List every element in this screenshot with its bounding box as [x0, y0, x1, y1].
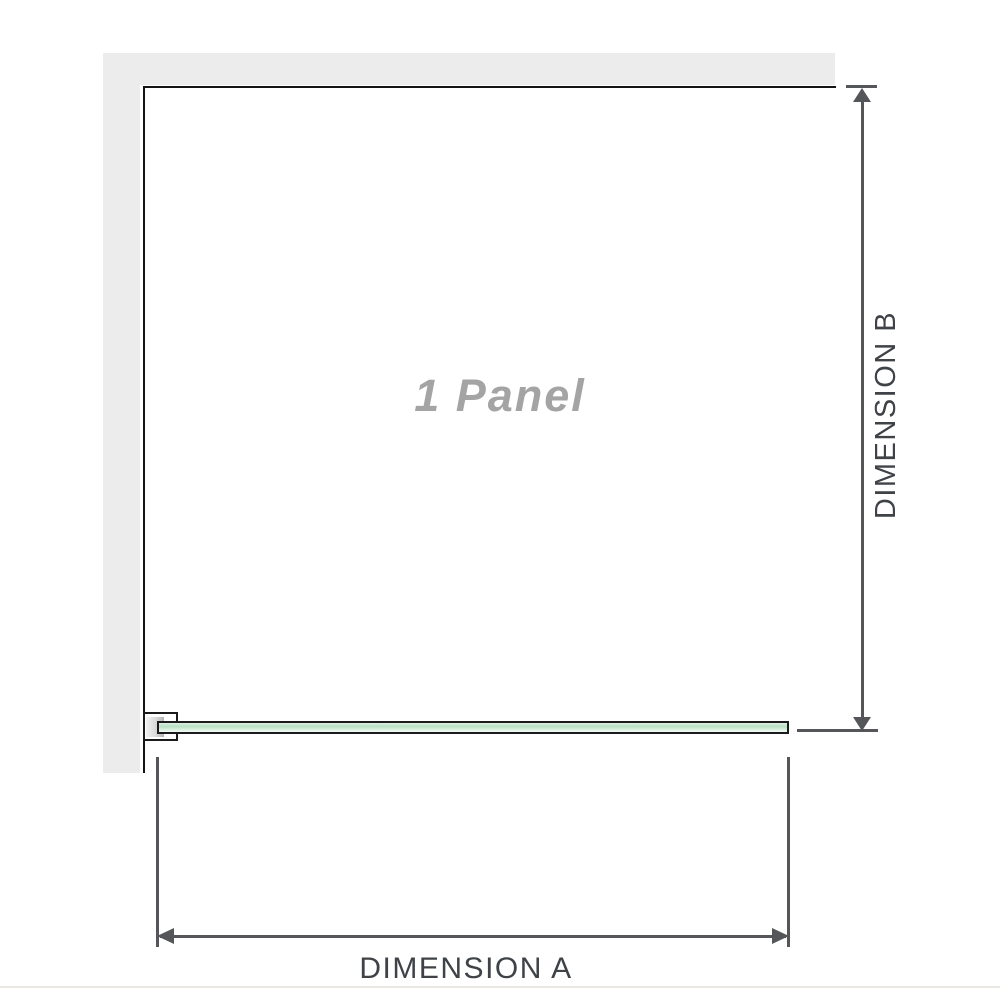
wall-left-bar [103, 53, 140, 773]
baseline-rule [0, 986, 1000, 988]
dimension-b-line [861, 99, 864, 719]
dimension-a-extension-left [156, 757, 159, 947]
panel-outline-top [143, 86, 836, 88]
dimension-a-line [160, 935, 786, 938]
dimension-b-label: DIMENSION B [870, 305, 900, 525]
arrow-up-icon [853, 88, 871, 102]
arrow-down-icon [853, 717, 871, 731]
arrow-right-icon [772, 928, 789, 944]
dimension-diagram: 1 Panel DIMENSION B DIMENSION A [0, 0, 1000, 1000]
panel-outline-left [143, 86, 145, 773]
dimension-a-label: DIMENSION A [316, 952, 616, 986]
arrow-left-icon [157, 928, 174, 944]
dimension-a-extension-right [787, 757, 790, 947]
glass-panel-plan [157, 721, 789, 734]
panel-count-label: 1 Panel [300, 370, 700, 422]
wall-top-bar [103, 53, 835, 85]
